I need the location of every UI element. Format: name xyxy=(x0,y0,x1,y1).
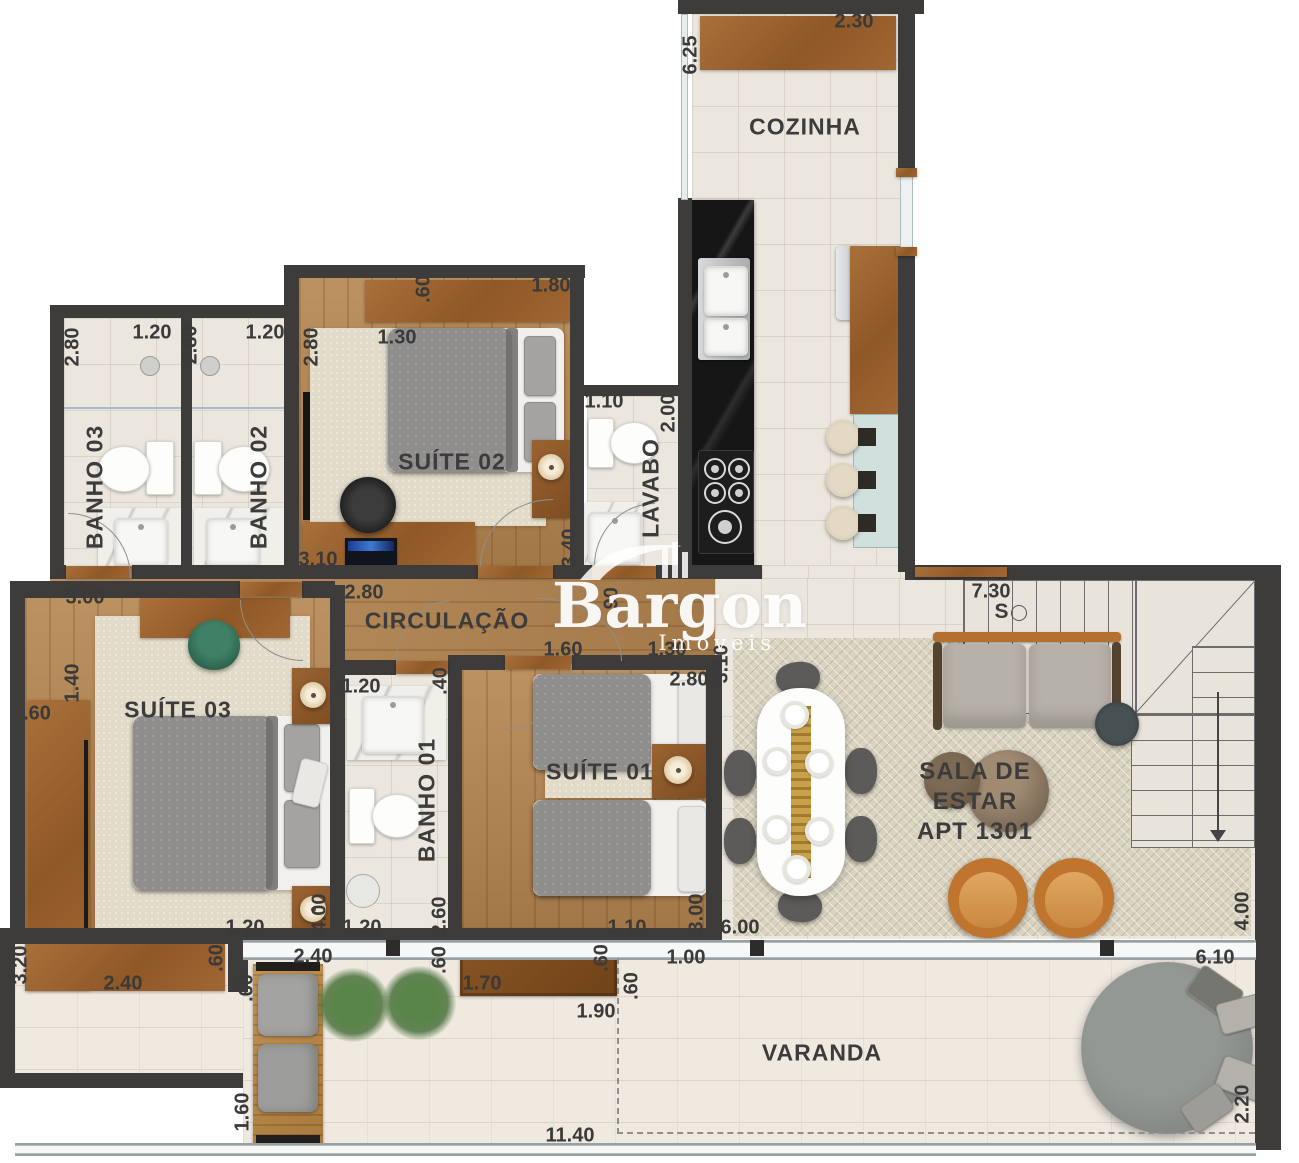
shower-divider xyxy=(192,407,285,409)
cooktop-burner xyxy=(704,458,726,480)
dimension-label: 1.60 xyxy=(232,1093,255,1132)
dimension-label: 1.20 xyxy=(133,322,172,345)
armchair-seat xyxy=(1045,872,1103,928)
dimension-label: 1.90 xyxy=(577,1001,616,1024)
room-label: SUÍTE 01 xyxy=(546,758,654,787)
suite1-bed2-duvet xyxy=(533,800,651,896)
dimension-label: 4.00 xyxy=(1232,892,1255,931)
suite2-desk-chair xyxy=(340,477,396,533)
kitchen-window-frame xyxy=(896,168,917,177)
shower-head xyxy=(140,356,160,376)
plate xyxy=(783,855,811,883)
bar-stool-back xyxy=(858,471,876,489)
wall xyxy=(656,565,762,579)
stairs-divider xyxy=(1192,646,1193,848)
suite2-tv xyxy=(303,392,310,520)
bench-cushion xyxy=(258,1044,318,1112)
dimension-label: 1.10 xyxy=(608,917,647,940)
dimension-label: 1.80 xyxy=(532,275,571,298)
suite3-bed-blanket xyxy=(266,716,278,890)
dimension-label: 11.40 xyxy=(546,1125,595,1148)
dimension-label: 2.60 xyxy=(429,897,452,936)
room-label: VARANDA xyxy=(762,1039,882,1068)
wall xyxy=(898,0,915,172)
kitchen-sink-basin-1 xyxy=(704,266,748,316)
dimension-label: 1.30 xyxy=(378,327,417,350)
dimension-label: 3.40 xyxy=(559,529,582,568)
dimension-label: 2.80 xyxy=(345,582,384,605)
plate xyxy=(805,817,833,845)
dimension-label: 2.30 xyxy=(835,11,874,34)
suite1-bed2-pillow xyxy=(678,806,706,892)
shower-head xyxy=(200,356,220,376)
wall xyxy=(898,252,915,572)
dimension-label: .60 xyxy=(429,946,452,974)
stairs-right-flight-upper xyxy=(1192,646,1255,714)
dimension-label: 2.80 xyxy=(180,326,203,365)
plate xyxy=(781,701,809,729)
window-post xyxy=(386,940,400,956)
table-runner xyxy=(791,706,811,878)
dimension-label: 4.00 xyxy=(309,894,332,933)
room-label: S xyxy=(994,599,1009,625)
door-lintel-suite3 xyxy=(240,582,302,596)
wall xyxy=(570,265,584,390)
sofa-back-frame xyxy=(933,632,1121,642)
dimension-label: 6.10 xyxy=(1196,947,1235,970)
door-lintel-lavabo xyxy=(592,566,656,578)
veranda-boundary-dashed xyxy=(617,958,619,1134)
dimension-label: 6.00 xyxy=(721,917,760,940)
room-label: BANHO 03 xyxy=(81,425,110,549)
bench-cushion xyxy=(258,974,318,1036)
dimension-label: .90 xyxy=(601,587,624,615)
dimension-label: 3.00 xyxy=(686,894,709,933)
shower-divider xyxy=(64,407,181,409)
dimension-label: 1.20 xyxy=(246,322,285,345)
dimension-label: 3.20 xyxy=(10,946,33,985)
dining-chair xyxy=(724,818,756,864)
plate xyxy=(805,749,833,777)
dimension-label: 2.80 xyxy=(301,328,324,367)
dimension-label: .60 xyxy=(413,275,436,303)
stairs-arrow xyxy=(1217,692,1219,832)
dimension-label: 2.80 xyxy=(62,328,85,367)
suite3-bed-duvet xyxy=(133,716,273,890)
bar-stool-back xyxy=(858,428,876,446)
dimension-label: 1.10 xyxy=(585,391,624,414)
dimension-label: 2.40 xyxy=(104,973,143,996)
kitchen-sink-basin-2 xyxy=(704,318,748,356)
living-sliding-door xyxy=(915,567,1007,577)
toilet-tank xyxy=(146,441,174,495)
wall xyxy=(678,0,924,14)
wall xyxy=(10,581,25,943)
bar-stool xyxy=(826,463,860,497)
potted-plant xyxy=(382,966,456,1040)
suite3-lamp xyxy=(300,682,326,708)
room-label: LAVABO xyxy=(637,438,666,538)
bar-stool xyxy=(826,506,860,540)
suite2-lamp xyxy=(538,454,564,480)
dimension-label: 3.00 xyxy=(66,587,105,610)
dining-chair xyxy=(724,750,756,796)
window-post xyxy=(750,940,764,956)
dimension-label: 2.40 xyxy=(294,946,333,969)
window-post xyxy=(1100,940,1114,956)
stairs-lower-flight xyxy=(1131,714,1255,848)
dimension-label: 2.20 xyxy=(1232,1085,1255,1124)
wall xyxy=(284,265,299,570)
dining-chair xyxy=(845,816,877,862)
wall xyxy=(1255,565,1281,1150)
suite3-wardrobe-handle xyxy=(84,740,88,940)
sofa-armrest xyxy=(933,642,942,730)
dimension-label: .60 xyxy=(591,944,614,972)
cooktop-burner-large xyxy=(708,510,742,544)
wall xyxy=(345,660,396,675)
kitchen-window-frame xyxy=(896,247,917,256)
suite2-pillow xyxy=(524,336,556,396)
dimension-label: 1.60 xyxy=(544,639,583,662)
dimension-label: 1.00 xyxy=(667,947,706,970)
room-label: BANHO 01 xyxy=(413,738,442,862)
bar-stool xyxy=(826,420,860,454)
suite3-green-chair xyxy=(188,620,240,670)
cooktop-burner xyxy=(728,482,750,504)
dimension-label: 3.10 xyxy=(711,645,734,684)
veranda-outer-rail xyxy=(15,1143,1256,1156)
cooktop-burner xyxy=(704,482,726,504)
suite1-lamp xyxy=(664,756,692,784)
plate xyxy=(763,747,791,775)
sofa-cushion xyxy=(943,644,1026,728)
wall xyxy=(50,305,293,318)
dimension-label: .60 xyxy=(206,944,229,972)
room-label: BANHO 02 xyxy=(245,425,274,549)
dimension-label: .60 xyxy=(23,703,51,726)
room-label: CIRCULAÇÃO xyxy=(365,607,530,636)
dimension-label: 1.30 xyxy=(648,639,687,662)
suite2-bed-blanket xyxy=(506,328,518,472)
veranda-boundary-dashed xyxy=(617,1132,1255,1134)
dimension-label: 3.10 xyxy=(299,549,338,572)
door-lintel-suite2 xyxy=(478,566,553,578)
floor-plan: 6.252.302.801.202.801.202.80.601.801.301… xyxy=(0,0,1299,1163)
banho1-shower-drain xyxy=(346,874,380,908)
wall xyxy=(0,1073,243,1088)
wall xyxy=(462,655,505,670)
room-label: SUÍTE 02 xyxy=(398,448,506,477)
plate xyxy=(763,815,791,843)
dimension-label: 2.00 xyxy=(658,394,681,433)
dimension-label: 1.20 xyxy=(342,676,381,699)
dimension-label: .40 xyxy=(430,667,453,695)
wall xyxy=(678,198,692,575)
dimension-label: 1.20 xyxy=(343,917,382,940)
potted-plant xyxy=(316,968,390,1042)
dimension-label: .60 xyxy=(236,974,259,1002)
room-label: SALA DE ESTAR APT 1301 xyxy=(917,757,1033,847)
dimension-label: 6.25 xyxy=(680,36,703,75)
dimension-label: 2.80 xyxy=(670,669,709,692)
stairs-arrow-head xyxy=(1210,830,1226,842)
dimension-label: 1.40 xyxy=(62,664,85,703)
wall xyxy=(330,585,345,943)
cooktop-burner xyxy=(728,458,750,480)
kitchen-right-window xyxy=(900,176,913,248)
dining-chair xyxy=(845,748,877,794)
armchair-seat xyxy=(959,872,1017,928)
room-label: SUÍTE 03 xyxy=(124,696,232,725)
dimension-label: .60 xyxy=(621,972,644,1000)
suite2-laptop xyxy=(345,538,397,566)
bar-stool-back xyxy=(858,514,876,532)
kitchen-island-counter xyxy=(850,246,900,414)
wall xyxy=(10,581,240,598)
stairs-start-marker xyxy=(1011,605,1027,621)
dimension-label: 1.70 xyxy=(463,973,502,996)
room-label: COZINHA xyxy=(749,113,861,142)
sofa-side-table xyxy=(1095,702,1139,746)
dimension-label: 1.20 xyxy=(226,917,265,940)
wall xyxy=(50,565,66,579)
suite3-pillow xyxy=(284,800,320,868)
